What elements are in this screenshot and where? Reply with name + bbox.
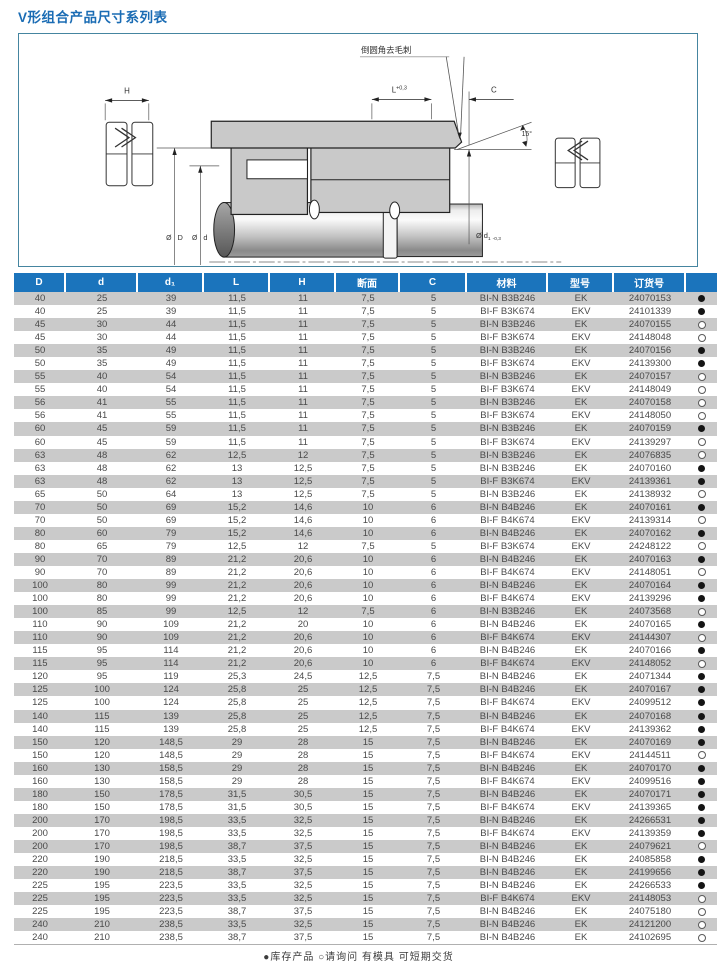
table-row: 200170198,533,532,5157,5BI-N B4B246EK242… bbox=[14, 814, 717, 827]
order-number-cell: 24070160 bbox=[614, 462, 686, 475]
stock-dot-filled bbox=[698, 425, 705, 432]
cell: 12 bbox=[270, 449, 336, 462]
cell: 7,5 bbox=[336, 409, 400, 422]
table-row: 40253911,5117,55BI-N B3B246EK24070153 bbox=[14, 292, 717, 305]
cell: 100 bbox=[66, 683, 138, 696]
stock-dot-filled bbox=[698, 465, 705, 472]
angle-label: 15° bbox=[522, 130, 533, 138]
stock-dot-filled bbox=[698, 830, 705, 837]
cell: BI-N B3B246 bbox=[467, 344, 548, 357]
cell: 21,2 bbox=[204, 618, 270, 631]
cell: 7,5 bbox=[400, 827, 467, 840]
cell: 115 bbox=[14, 644, 66, 657]
table-row: 160130158,52928157,5BI-F B4K674EKV240995… bbox=[14, 775, 717, 788]
cell: 11 bbox=[270, 331, 336, 344]
cell: 5 bbox=[400, 409, 467, 422]
order-number-cell: 24070163 bbox=[614, 553, 686, 566]
cell: 7,5 bbox=[336, 449, 400, 462]
cell: 238,5 bbox=[138, 918, 204, 931]
availability-cell bbox=[686, 670, 717, 683]
order-number-cell: 24070166 bbox=[614, 644, 686, 657]
cell: EKV bbox=[548, 566, 614, 579]
table-row: 12510012425,82512,57,5BI-F B4K674EKV2409… bbox=[14, 696, 717, 709]
stock-dot-filled bbox=[698, 765, 705, 772]
cell: BI-N B4B246 bbox=[467, 853, 548, 866]
column-header: d₁ bbox=[138, 273, 204, 292]
cell: 45 bbox=[14, 318, 66, 331]
cell: 13 bbox=[204, 488, 270, 501]
cell: 119 bbox=[138, 670, 204, 683]
cell: BI-F B3K674 bbox=[467, 305, 548, 318]
column-header bbox=[686, 273, 717, 292]
technical-diagram: H bbox=[18, 33, 698, 267]
cell: 30 bbox=[66, 331, 138, 344]
cell: 12,5 bbox=[336, 723, 400, 736]
left-vring-symbol: H bbox=[105, 86, 153, 185]
cell: 198,5 bbox=[138, 840, 204, 853]
cell: BI-N B3B246 bbox=[467, 292, 548, 305]
availability-cell bbox=[686, 631, 717, 644]
dim-L-tolerance: +0,3 bbox=[396, 86, 407, 92]
cell: 12 bbox=[270, 605, 336, 618]
stock-dot-filled bbox=[698, 556, 705, 563]
cell: 5 bbox=[400, 422, 467, 435]
cell: 50 bbox=[14, 357, 66, 370]
table-row: 6348621312,57,55BI-F B3K674EKV24139361 bbox=[14, 475, 717, 488]
cell: 6 bbox=[400, 605, 467, 618]
order-number-cell: 24121200 bbox=[614, 918, 686, 931]
cell: 15 bbox=[336, 788, 400, 801]
dia-D-symbol: Ø bbox=[166, 235, 172, 242]
cell: 60 bbox=[14, 436, 66, 449]
cell: 90 bbox=[66, 618, 138, 631]
dia-d1-tolerance: -0,3 bbox=[493, 236, 502, 242]
availability-cell bbox=[686, 527, 717, 540]
order-number-cell: 24139300 bbox=[614, 357, 686, 370]
cell: 170 bbox=[66, 827, 138, 840]
cell: 139 bbox=[138, 723, 204, 736]
stock-dot-filled bbox=[698, 673, 705, 680]
cell: BI-F B4K674 bbox=[467, 514, 548, 527]
cell: EK bbox=[548, 905, 614, 918]
table-row: 220190218,533,532,5157,5BI-N B4B246EK240… bbox=[14, 853, 717, 866]
cell: 13 bbox=[204, 462, 270, 475]
availability-cell bbox=[686, 344, 717, 357]
cell: 55 bbox=[138, 409, 204, 422]
availability-cell bbox=[686, 723, 717, 736]
availability-cell bbox=[686, 683, 717, 696]
cell: 10 bbox=[336, 566, 400, 579]
availability-cell bbox=[686, 370, 717, 383]
cell: 25 bbox=[270, 696, 336, 709]
cell: 7,5 bbox=[400, 801, 467, 814]
cell: 198,5 bbox=[138, 827, 204, 840]
table-row: 100809921,220,6106BI-F B4K674EKV24139296 bbox=[14, 592, 717, 605]
availability-cell bbox=[686, 383, 717, 396]
cell: 11 bbox=[270, 422, 336, 435]
column-header: 断面 bbox=[336, 273, 400, 292]
cell: 11 bbox=[270, 396, 336, 409]
column-header: D bbox=[14, 273, 66, 292]
stock-dot-filled bbox=[698, 817, 705, 824]
stock-dot-filled bbox=[698, 504, 705, 511]
stock-dot-open bbox=[698, 608, 706, 616]
table-row: 14011513925,82512,57,5BI-N B4B246EK24070… bbox=[14, 710, 717, 723]
cell: 30,5 bbox=[270, 788, 336, 801]
cell: 14,6 bbox=[270, 514, 336, 527]
order-number-cell: 24139362 bbox=[614, 723, 686, 736]
availability-cell bbox=[686, 762, 717, 775]
order-number-cell: 24070171 bbox=[614, 788, 686, 801]
stock-dot-filled bbox=[698, 595, 705, 602]
stock-dot-filled bbox=[698, 726, 705, 733]
cell: 15 bbox=[336, 892, 400, 905]
order-number-cell: 24148050 bbox=[614, 409, 686, 422]
availability-cell bbox=[686, 866, 717, 879]
cell: BI-F B3K674 bbox=[467, 383, 548, 396]
cell: 158,5 bbox=[138, 775, 204, 788]
stock-dot-open bbox=[698, 660, 706, 668]
order-number-cell: 24099516 bbox=[614, 775, 686, 788]
order-number-cell: 24070165 bbox=[614, 618, 686, 631]
stock-dot-filled bbox=[698, 530, 705, 537]
cell: 95 bbox=[66, 670, 138, 683]
cell: 170 bbox=[66, 840, 138, 853]
cell: 7,5 bbox=[400, 892, 467, 905]
cell: EK bbox=[548, 644, 614, 657]
column-header: 材料 bbox=[467, 273, 548, 292]
stock-dot-open bbox=[698, 399, 706, 407]
availability-cell bbox=[686, 318, 717, 331]
cell: EK bbox=[548, 931, 614, 945]
cell: BI-N B4B246 bbox=[467, 618, 548, 631]
order-number-cell: 24148051 bbox=[614, 566, 686, 579]
cell: EK bbox=[548, 840, 614, 853]
cell: BI-N B4B246 bbox=[467, 579, 548, 592]
table-row: 160130158,52928157,5BI-N B4B246EK2407017… bbox=[14, 762, 717, 775]
cell: BI-N B3B246 bbox=[467, 462, 548, 475]
cell: 45 bbox=[66, 436, 138, 449]
cell: 15,2 bbox=[204, 514, 270, 527]
table-row: 55405411,5117,55BI-N B3B246EK24070157 bbox=[14, 370, 717, 383]
order-number-cell: 24070169 bbox=[614, 736, 686, 749]
cell: 11 bbox=[270, 370, 336, 383]
cell: 55 bbox=[138, 396, 204, 409]
cell: EK bbox=[548, 788, 614, 801]
cell: 240 bbox=[14, 918, 66, 931]
cell: 21,2 bbox=[204, 592, 270, 605]
cell: BI-N B4B246 bbox=[467, 644, 548, 657]
cell: BI-F B4K674 bbox=[467, 775, 548, 788]
cell: 7,5 bbox=[336, 292, 400, 305]
stock-dot-open bbox=[698, 451, 706, 459]
cell: EKV bbox=[548, 749, 614, 762]
cell: 158,5 bbox=[138, 762, 204, 775]
stock-dot-filled bbox=[698, 686, 705, 693]
cell: 31,5 bbox=[204, 788, 270, 801]
cell: 125 bbox=[14, 696, 66, 709]
cell: 32,5 bbox=[270, 892, 336, 905]
cell: EK bbox=[548, 318, 614, 331]
table-row: 6550641312,57,55BI-N B3B246EK24138932 bbox=[14, 488, 717, 501]
cell: 210 bbox=[66, 931, 138, 945]
cell: 190 bbox=[66, 866, 138, 879]
cell: 178,5 bbox=[138, 801, 204, 814]
cell: 32,5 bbox=[270, 879, 336, 892]
cell: EK bbox=[548, 683, 614, 696]
stock-dot-filled bbox=[698, 699, 705, 706]
cell: BI-F B3K674 bbox=[467, 331, 548, 344]
cell: BI-N B4B246 bbox=[467, 683, 548, 696]
L-dimension: L+0,3 bbox=[372, 85, 431, 119]
table-row: 90708921,220,6106BI-F B4K674EKV24148051 bbox=[14, 566, 717, 579]
cell: 64 bbox=[138, 488, 204, 501]
cell: 33,5 bbox=[204, 918, 270, 931]
order-number-cell: 24070170 bbox=[614, 762, 686, 775]
cell: EKV bbox=[548, 631, 614, 644]
cell: 20,6 bbox=[270, 566, 336, 579]
availability-cell bbox=[686, 931, 717, 945]
cell: EK bbox=[548, 527, 614, 540]
cell: BI-N B4B246 bbox=[467, 527, 548, 540]
cell: 70 bbox=[66, 566, 138, 579]
cell: 11,5 bbox=[204, 409, 270, 422]
cell: EK bbox=[548, 605, 614, 618]
order-number-cell: 24070164 bbox=[614, 579, 686, 592]
table-row: 50354911,5117,55BI-N B3B246EK24070156 bbox=[14, 344, 717, 357]
order-number-cell: 24070158 bbox=[614, 396, 686, 409]
availability-cell bbox=[686, 788, 717, 801]
stock-dot-open bbox=[698, 908, 706, 916]
cell: 6 bbox=[400, 566, 467, 579]
availability-cell bbox=[686, 892, 717, 905]
cell: 5 bbox=[400, 331, 467, 344]
cell: 40 bbox=[14, 305, 66, 318]
cell: BI-F B4K674 bbox=[467, 892, 548, 905]
order-number-cell: 24148052 bbox=[614, 657, 686, 670]
cell: 65 bbox=[66, 540, 138, 553]
cell: 140 bbox=[14, 710, 66, 723]
cell: 28 bbox=[270, 736, 336, 749]
cell: 223,5 bbox=[138, 879, 204, 892]
order-number-cell: 24266533 bbox=[614, 879, 686, 892]
table-row: 56415511,5117,55BI-F B3K674EKV24148050 bbox=[14, 409, 717, 422]
cell: EKV bbox=[548, 827, 614, 840]
cell: 14,6 bbox=[270, 501, 336, 514]
cell: 24,5 bbox=[270, 670, 336, 683]
cell: 6 bbox=[400, 514, 467, 527]
table-row: 1109010921,220106BI-N B4B246EK24070165 bbox=[14, 618, 717, 631]
cell: 15,2 bbox=[204, 501, 270, 514]
cell: 15 bbox=[336, 814, 400, 827]
table-row: 1159511421,220,6106BI-N B4B246EK24070166 bbox=[14, 644, 717, 657]
cell: 48 bbox=[66, 449, 138, 462]
availability-cell bbox=[686, 775, 717, 788]
cell: EKV bbox=[548, 475, 614, 488]
stock-dot-open bbox=[698, 634, 706, 642]
cell: 99 bbox=[138, 592, 204, 605]
order-number-cell: 24070159 bbox=[614, 422, 686, 435]
availability-cell bbox=[686, 475, 717, 488]
cell: 11,5 bbox=[204, 305, 270, 318]
cell: EKV bbox=[548, 775, 614, 788]
cell: 32,5 bbox=[270, 853, 336, 866]
cell: 100 bbox=[66, 696, 138, 709]
availability-cell bbox=[686, 422, 717, 435]
cell: 33,5 bbox=[204, 827, 270, 840]
cell: 21,2 bbox=[204, 566, 270, 579]
cell: 120 bbox=[66, 749, 138, 762]
cell: 50 bbox=[66, 488, 138, 501]
cell: 7,5 bbox=[400, 775, 467, 788]
C-dimension: C bbox=[469, 85, 514, 145]
availability-cell bbox=[686, 918, 717, 931]
cell: 11,5 bbox=[204, 370, 270, 383]
table-row: 220190218,538,737,5157,5BI-N B4B246EK241… bbox=[14, 866, 717, 879]
cell: 21,2 bbox=[204, 631, 270, 644]
table-row: 225195223,533,532,5157,5BI-F B4K674EKV24… bbox=[14, 892, 717, 905]
cell: 33,5 bbox=[204, 892, 270, 905]
stock-dot-filled bbox=[698, 621, 705, 628]
cell: 6 bbox=[400, 592, 467, 605]
order-number-cell: 24199656 bbox=[614, 866, 686, 879]
table-row: 14011513925,82512,57,5BI-F B4K674EKV2413… bbox=[14, 723, 717, 736]
cell: EKV bbox=[548, 696, 614, 709]
cell: 33,5 bbox=[204, 853, 270, 866]
cell: BI-N B4B246 bbox=[467, 501, 548, 514]
cell: BI-N B3B246 bbox=[467, 605, 548, 618]
table-row: 180150178,531,530,5157,5BI-F B4K674EKV24… bbox=[14, 801, 717, 814]
cell: 6 bbox=[400, 527, 467, 540]
availability-cell bbox=[686, 292, 717, 305]
order-number-cell: 24079621 bbox=[614, 840, 686, 853]
cell: 90 bbox=[14, 553, 66, 566]
cell: 198,5 bbox=[138, 814, 204, 827]
cell: 39 bbox=[138, 292, 204, 305]
cell: EK bbox=[548, 814, 614, 827]
cell: 20 bbox=[270, 618, 336, 631]
cell: 12,5 bbox=[204, 540, 270, 553]
cell: 220 bbox=[14, 853, 66, 866]
stock-dot-filled bbox=[698, 739, 705, 746]
cell: EKV bbox=[548, 514, 614, 527]
cell: 38,7 bbox=[204, 866, 270, 879]
gland-plate bbox=[211, 121, 461, 148]
availability-cell bbox=[686, 827, 717, 840]
right-vring-symbol bbox=[555, 138, 600, 188]
table-row: 70506915,214,6106BI-N B4B246EK24070161 bbox=[14, 501, 717, 514]
cell: 49 bbox=[138, 357, 204, 370]
table-row: 150120148,52928157,5BI-F B4K674EKV241445… bbox=[14, 749, 717, 762]
cell: 5 bbox=[400, 436, 467, 449]
table-row: 55405411,5117,55BI-F B3K674EKV24148049 bbox=[14, 383, 717, 396]
cell: 7,5 bbox=[400, 749, 467, 762]
cell: 7,5 bbox=[400, 710, 467, 723]
cell: 25,8 bbox=[204, 723, 270, 736]
availability-cell bbox=[686, 579, 717, 592]
cell: EK bbox=[548, 449, 614, 462]
table-row: 12510012425,82512,57,5BI-N B4B246EK24070… bbox=[14, 683, 717, 696]
cell: 160 bbox=[14, 762, 66, 775]
cell: BI-N B4B246 bbox=[467, 918, 548, 931]
cell: EKV bbox=[548, 409, 614, 422]
cell: 7,5 bbox=[400, 736, 467, 749]
cell: 7,5 bbox=[336, 383, 400, 396]
cell: 55 bbox=[14, 383, 66, 396]
cell: 15 bbox=[336, 749, 400, 762]
cell: EK bbox=[548, 344, 614, 357]
table-row: 45304411,5117,55BI-F B3K674EKV24148048 bbox=[14, 331, 717, 344]
cell: 90 bbox=[14, 566, 66, 579]
order-number-cell: 24070168 bbox=[614, 710, 686, 723]
table-row: 70506915,214,6106BI-F B4K674EKV24139314 bbox=[14, 514, 717, 527]
availability-cell bbox=[686, 801, 717, 814]
cell: 55 bbox=[14, 370, 66, 383]
table-row: 40253911,5117,55BI-F B3K674EKV24101339 bbox=[14, 305, 717, 318]
cell: 100 bbox=[14, 592, 66, 605]
cell: 10 bbox=[336, 592, 400, 605]
cell: BI-N B3B246 bbox=[467, 318, 548, 331]
stock-dot-filled bbox=[698, 869, 705, 876]
cell: 150 bbox=[66, 801, 138, 814]
stock-dot-open bbox=[698, 895, 706, 903]
cell: 39 bbox=[138, 305, 204, 318]
cell: 11 bbox=[270, 318, 336, 331]
cell: 60 bbox=[66, 527, 138, 540]
cell: BI-N B3B246 bbox=[467, 449, 548, 462]
table-row: 60455911,5117,55BI-F B3K674EKV24139297 bbox=[14, 436, 717, 449]
cell: 32,5 bbox=[270, 918, 336, 931]
cell: 7,5 bbox=[400, 683, 467, 696]
cell: 5 bbox=[400, 370, 467, 383]
cell: 79 bbox=[138, 540, 204, 553]
callout-text: 倒圆角去毛刺 bbox=[361, 45, 411, 55]
order-number-cell: 24070161 bbox=[614, 501, 686, 514]
cell: 50 bbox=[66, 514, 138, 527]
cell: 30,5 bbox=[270, 801, 336, 814]
cell: 5 bbox=[400, 475, 467, 488]
cell: 48 bbox=[66, 462, 138, 475]
cell: 12,5 bbox=[270, 488, 336, 501]
cell: 15 bbox=[336, 931, 400, 945]
cell: 7,5 bbox=[400, 931, 467, 945]
cell: 114 bbox=[138, 644, 204, 657]
cell: 218,5 bbox=[138, 866, 204, 879]
table-row: 200170198,538,737,5157,5BI-N B4B246EK240… bbox=[14, 840, 717, 853]
cell: 29 bbox=[204, 749, 270, 762]
cell: 7,5 bbox=[336, 396, 400, 409]
table-row: 56415511,5117,55BI-N B3B246EK24070158 bbox=[14, 396, 717, 409]
cell: 7,5 bbox=[336, 462, 400, 475]
size-table: Ddd₁LH断面C材料型号订货号 40253911,5117,55BI-N B3… bbox=[14, 273, 717, 945]
cell: BI-N B4B246 bbox=[467, 879, 548, 892]
availability-cell bbox=[686, 814, 717, 827]
cell: 63 bbox=[14, 462, 66, 475]
availability-cell bbox=[686, 396, 717, 409]
cell: 99 bbox=[138, 579, 204, 592]
order-number-cell: 24139359 bbox=[614, 827, 686, 840]
cell: 63 bbox=[14, 475, 66, 488]
cell: BI-N B4B246 bbox=[467, 762, 548, 775]
availability-cell bbox=[686, 736, 717, 749]
cell: 5 bbox=[400, 318, 467, 331]
cell: EK bbox=[548, 553, 614, 566]
cell: 99 bbox=[138, 605, 204, 618]
cell: 62 bbox=[138, 475, 204, 488]
table-row: 50354911,5117,55BI-F B3K674EKV24139300 bbox=[14, 357, 717, 370]
dia-D-label: D bbox=[178, 233, 183, 242]
cell: 148,5 bbox=[138, 749, 204, 762]
